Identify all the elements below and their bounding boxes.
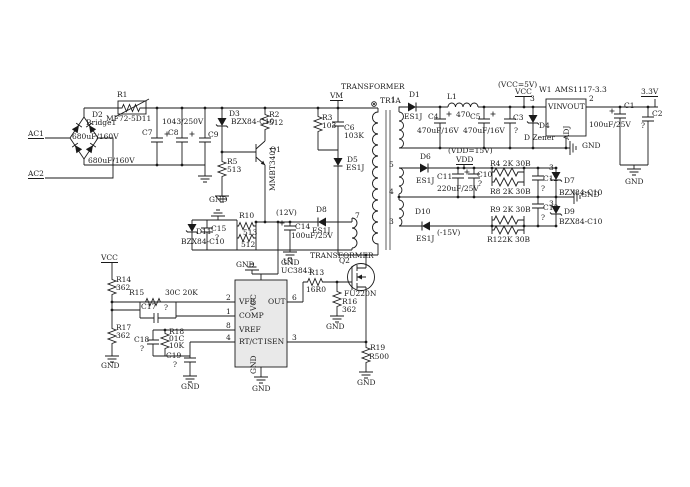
ref-c19: C19	[166, 351, 181, 360]
net-vdd: VDD	[456, 155, 473, 165]
ref-c2: C2	[652, 109, 663, 118]
pin-1: 1	[391, 95, 396, 104]
transformer-icon	[352, 102, 404, 255]
ref-c5: C5	[470, 112, 481, 121]
ref-d6: D6	[420, 152, 431, 161]
val-r15: 30C 20K	[165, 288, 198, 297]
gnd-u1-top-label: GND	[236, 260, 255, 269]
val-c12: ?	[541, 184, 545, 193]
val-l1: 470	[456, 110, 470, 119]
ref-r12: R122K 30B	[487, 235, 530, 244]
capacitor-symbols	[147, 109, 654, 363]
gnd-u1-bot-label: GND	[252, 384, 271, 393]
ref-c4: C4	[428, 112, 439, 121]
pin-3-vin: 3	[530, 94, 535, 103]
ref-c18: C18	[134, 335, 149, 344]
ref-c3: C3	[513, 113, 524, 122]
ref-r19: R19	[370, 343, 385, 352]
ref-q2: Q2	[339, 256, 350, 265]
ref-c7: C7	[142, 128, 153, 137]
controller-u1-box	[235, 280, 287, 367]
inductor-l1-icon	[448, 103, 478, 107]
pin-7: 7	[355, 211, 360, 220]
pinno-6: 6	[292, 293, 297, 302]
ref-d10: D10	[415, 207, 431, 216]
ref-r10: R10	[239, 211, 254, 220]
net-ac2: AC2	[28, 169, 44, 179]
val-u1: UC3843	[281, 266, 312, 275]
val-c5: 470uF/16V	[463, 126, 505, 135]
pinno-4: 4	[226, 333, 231, 342]
net-vm: VM	[330, 91, 343, 101]
ref-r8: R8 2K 30B	[490, 187, 531, 196]
pin-gnd-u1: GND	[249, 355, 258, 374]
ref-d9: D9	[564, 207, 575, 216]
val-r16: 362	[342, 305, 356, 314]
ref-c9: C9	[208, 130, 219, 139]
gnd-adj-label: GND	[582, 141, 601, 150]
ref-d1: D1	[409, 90, 420, 99]
pin-isen: ISEN	[264, 337, 284, 346]
schematic-canvas: AC1 AC2 D2 Bridge1 R1 MF72-5D11 C7 680uF…	[0, 0, 690, 487]
transformer-label: TRANSFORMER	[341, 82, 405, 91]
gnd-r19-label: GND	[357, 378, 376, 387]
pin-2-vout: 2	[589, 94, 594, 103]
ref-c14: C14	[295, 222, 310, 231]
pin-vref: VREF	[239, 325, 261, 334]
val-d8: ES1J	[312, 226, 330, 235]
val-c13: ?	[541, 213, 545, 222]
pin-comp: COMP	[239, 311, 264, 320]
ref-w1: W1	[539, 85, 551, 94]
pinno-3: 3	[292, 333, 297, 342]
val-d6: ES1J	[416, 176, 434, 185]
val-r10b: 512	[241, 240, 255, 249]
val-d4: D Zener	[524, 133, 555, 142]
pin-out: OUT	[268, 297, 285, 306]
ref-c8: C8	[168, 128, 179, 137]
ref-c1: C1	[624, 101, 635, 110]
val-c6: 103K	[344, 131, 364, 140]
val-c1: 100uF/25V	[589, 120, 631, 129]
ref-u1: U1	[283, 257, 294, 266]
val-d5: ES1J	[346, 163, 364, 172]
pinno-1: 1	[226, 307, 231, 316]
val-c10: ?	[478, 179, 482, 188]
pin-3-d9: 3	[549, 199, 554, 208]
val-r2: 512	[269, 118, 283, 127]
pin-3-d7: 3	[549, 163, 554, 172]
val-c2: ?	[641, 121, 645, 130]
val-d3: BZX84-C10	[231, 117, 274, 126]
val-r3: 103	[322, 121, 336, 130]
val-d1: ES1J	[404, 112, 422, 121]
val-c17: ?	[164, 303, 168, 312]
val-c19: ?	[173, 360, 177, 369]
val-c15: ?	[215, 233, 219, 242]
ref-d8: D8	[316, 205, 327, 214]
val-c3: ?	[514, 126, 518, 135]
val-d9: BZX84-C10	[559, 217, 602, 226]
ref-c11: C11	[437, 172, 452, 181]
note-vdd15: (VDD=15V)	[448, 146, 493, 155]
ref-r15: R15	[129, 288, 144, 297]
val-c11: 220uF/25V	[437, 184, 479, 193]
pin-vcc-u1: VCC	[249, 294, 258, 311]
schematic-artwork	[0, 0, 690, 487]
pinno-2: 2	[226, 293, 231, 302]
note-neg15: (-15V)	[437, 228, 460, 237]
val-c7: 680uF/160V	[72, 132, 119, 141]
ref-d4: D4	[539, 121, 550, 130]
ref-d7: D7	[564, 176, 575, 185]
pin-5: 5	[389, 160, 394, 169]
val-r18: 10K	[169, 341, 184, 350]
ref-r1: R1	[117, 90, 127, 99]
pin-vout: VOUT	[562, 102, 585, 111]
val-r19: R500	[369, 352, 389, 361]
val-r5: 513	[227, 165, 241, 174]
val-w1: AMS1117-3.3	[555, 85, 607, 94]
val-r10a: 513	[243, 228, 257, 237]
ref-d11: D11	[196, 227, 212, 236]
val-q1: MMBT3401	[268, 146, 277, 191]
net-ac1: AC1	[28, 129, 44, 139]
net-3v3: 3.3V	[641, 87, 658, 97]
val-r13: 16R0	[306, 285, 326, 294]
val-c9: 1043/250V	[162, 117, 203, 126]
ref-c15: C15	[211, 224, 226, 233]
note-12v: (12V)	[276, 208, 297, 217]
pin-3: 3	[389, 217, 394, 226]
ref-l1: L1	[447, 92, 457, 101]
ref-r4: R4 2K 30B	[490, 159, 531, 168]
gnd-3v3-label: GND	[625, 177, 644, 186]
gnd-r17-label: GND	[101, 361, 120, 370]
val-d10: ES1J	[416, 234, 434, 243]
ref-r13: R13	[309, 268, 324, 277]
net-vcc-ctrl: VCC	[101, 253, 118, 263]
pin-vin: VIN	[548, 102, 563, 111]
val-c4: 470uF/16V	[417, 126, 459, 135]
gnd-15-label: GND	[581, 190, 600, 199]
pin-adj: ADJ	[562, 126, 571, 140]
ref-c17: C17	[141, 302, 156, 311]
ref-c12: C12	[543, 174, 558, 183]
ref-c10: C10	[477, 170, 492, 179]
val-r1: MF72-5D11	[106, 114, 151, 123]
val-c8: 680uF/160V	[88, 156, 135, 165]
val-c18: ?	[140, 344, 144, 353]
gnd-aux-label: GND	[209, 195, 228, 204]
gnd-c19-label: GND	[181, 382, 200, 391]
pin-4: 4	[389, 187, 394, 196]
pin-rtct: RT/CT	[239, 337, 263, 346]
pinno-8: 8	[226, 321, 231, 330]
ref-r9: R9 2K 30B	[490, 205, 531, 214]
gnd-r16-label: GND	[326, 322, 345, 331]
val-r17: 362	[116, 331, 130, 340]
